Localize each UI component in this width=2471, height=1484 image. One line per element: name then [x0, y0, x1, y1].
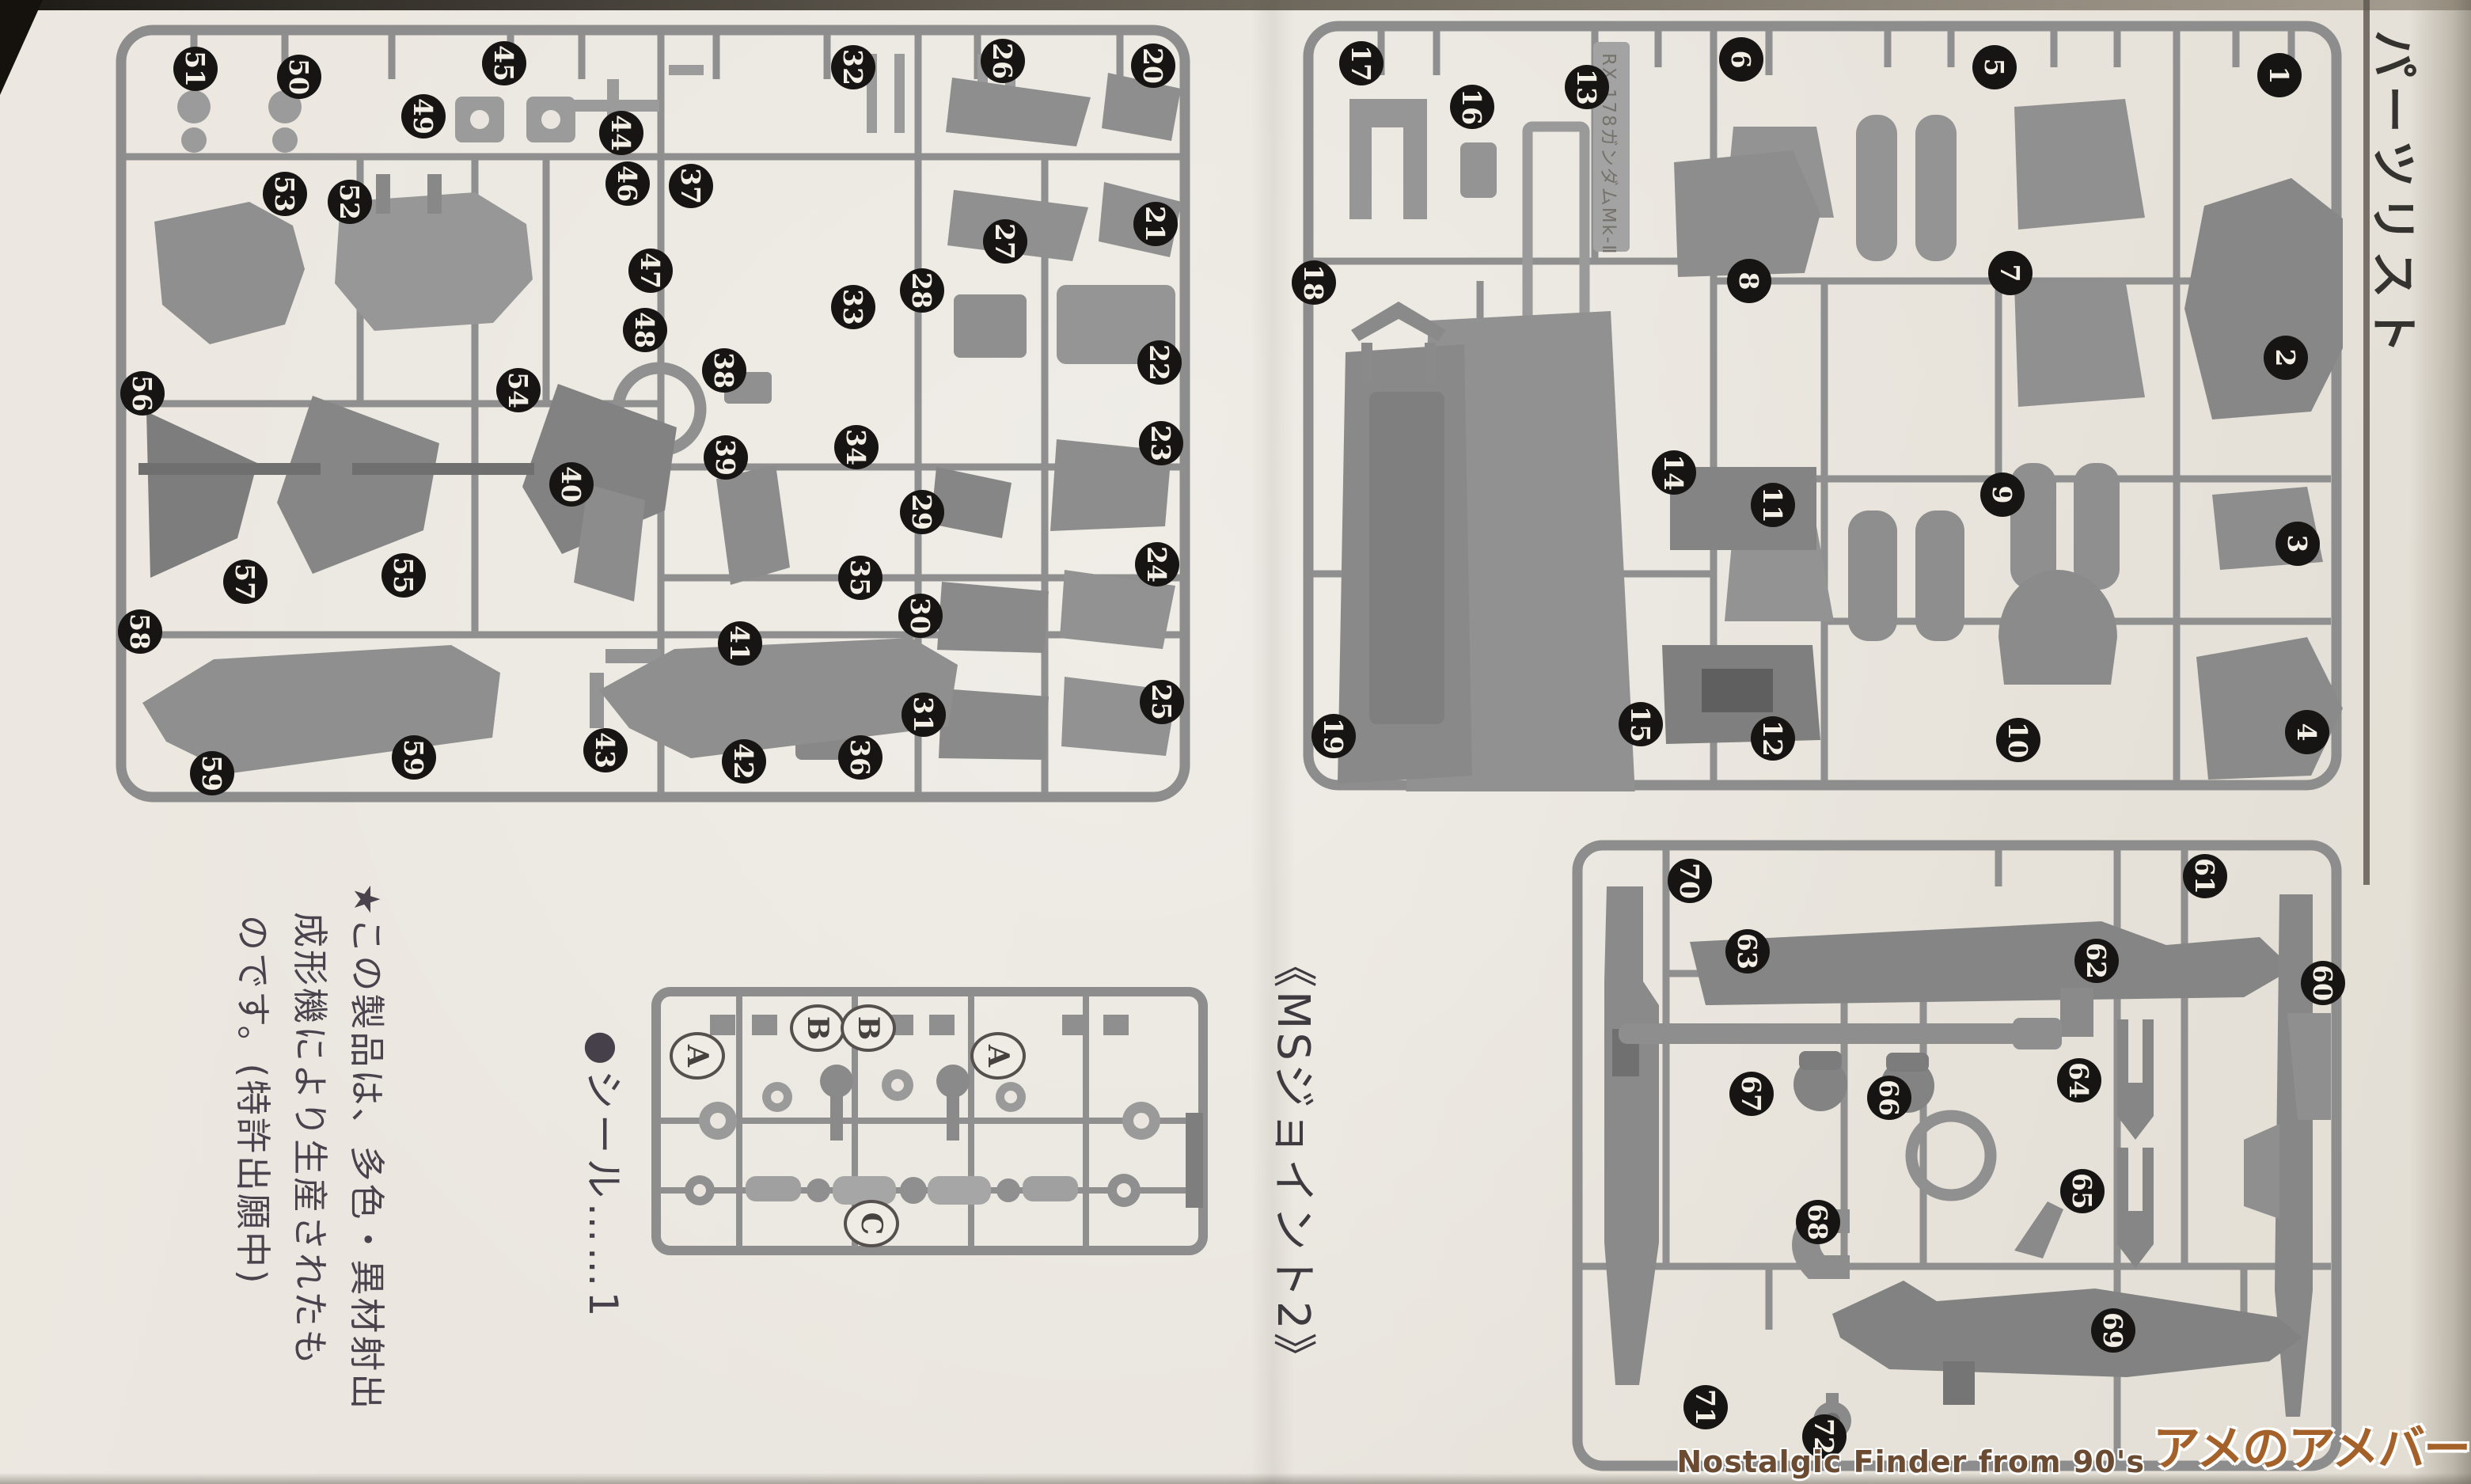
part-number-badge: 62	[2074, 939, 2119, 983]
production-note-line-2: 成形機により生産されたも	[287, 912, 339, 1367]
part-number-badge: 69	[2091, 1308, 2135, 1353]
watermark-logo: アメのアメバー	[2153, 1410, 2469, 1479]
part-number-badge: 67	[1729, 1072, 1774, 1116]
seal-note: ●シール……1	[578, 1030, 635, 1321]
part-number-badge: 65	[2060, 1169, 2105, 1213]
watermark-text: Nostalgic Finder from 90's	[1676, 1444, 2145, 1479]
watermark: Nostalgic Finder from 90's アメのアメバー	[1676, 1410, 2469, 1479]
production-note-line-3: のです。(特許出願中)	[230, 915, 282, 1286]
part-number-badge: 66	[1867, 1076, 1911, 1120]
part-number-badge: 68	[1796, 1200, 1840, 1244]
production-note-line-1: ★この製品は、多色・異材射出	[344, 883, 396, 1411]
part-number-badge: 63	[1725, 929, 1770, 974]
part-number-badge: 70	[1668, 859, 1712, 903]
part-number-badge: 61	[2183, 854, 2227, 898]
part-number-badge: 60	[2301, 961, 2345, 1005]
scanned-manual-page: パーツリスト	[0, 0, 2471, 1484]
part-number-badge: 64	[2057, 1058, 2101, 1103]
section-label: 《MSジョイント2》	[1265, 943, 1329, 1380]
